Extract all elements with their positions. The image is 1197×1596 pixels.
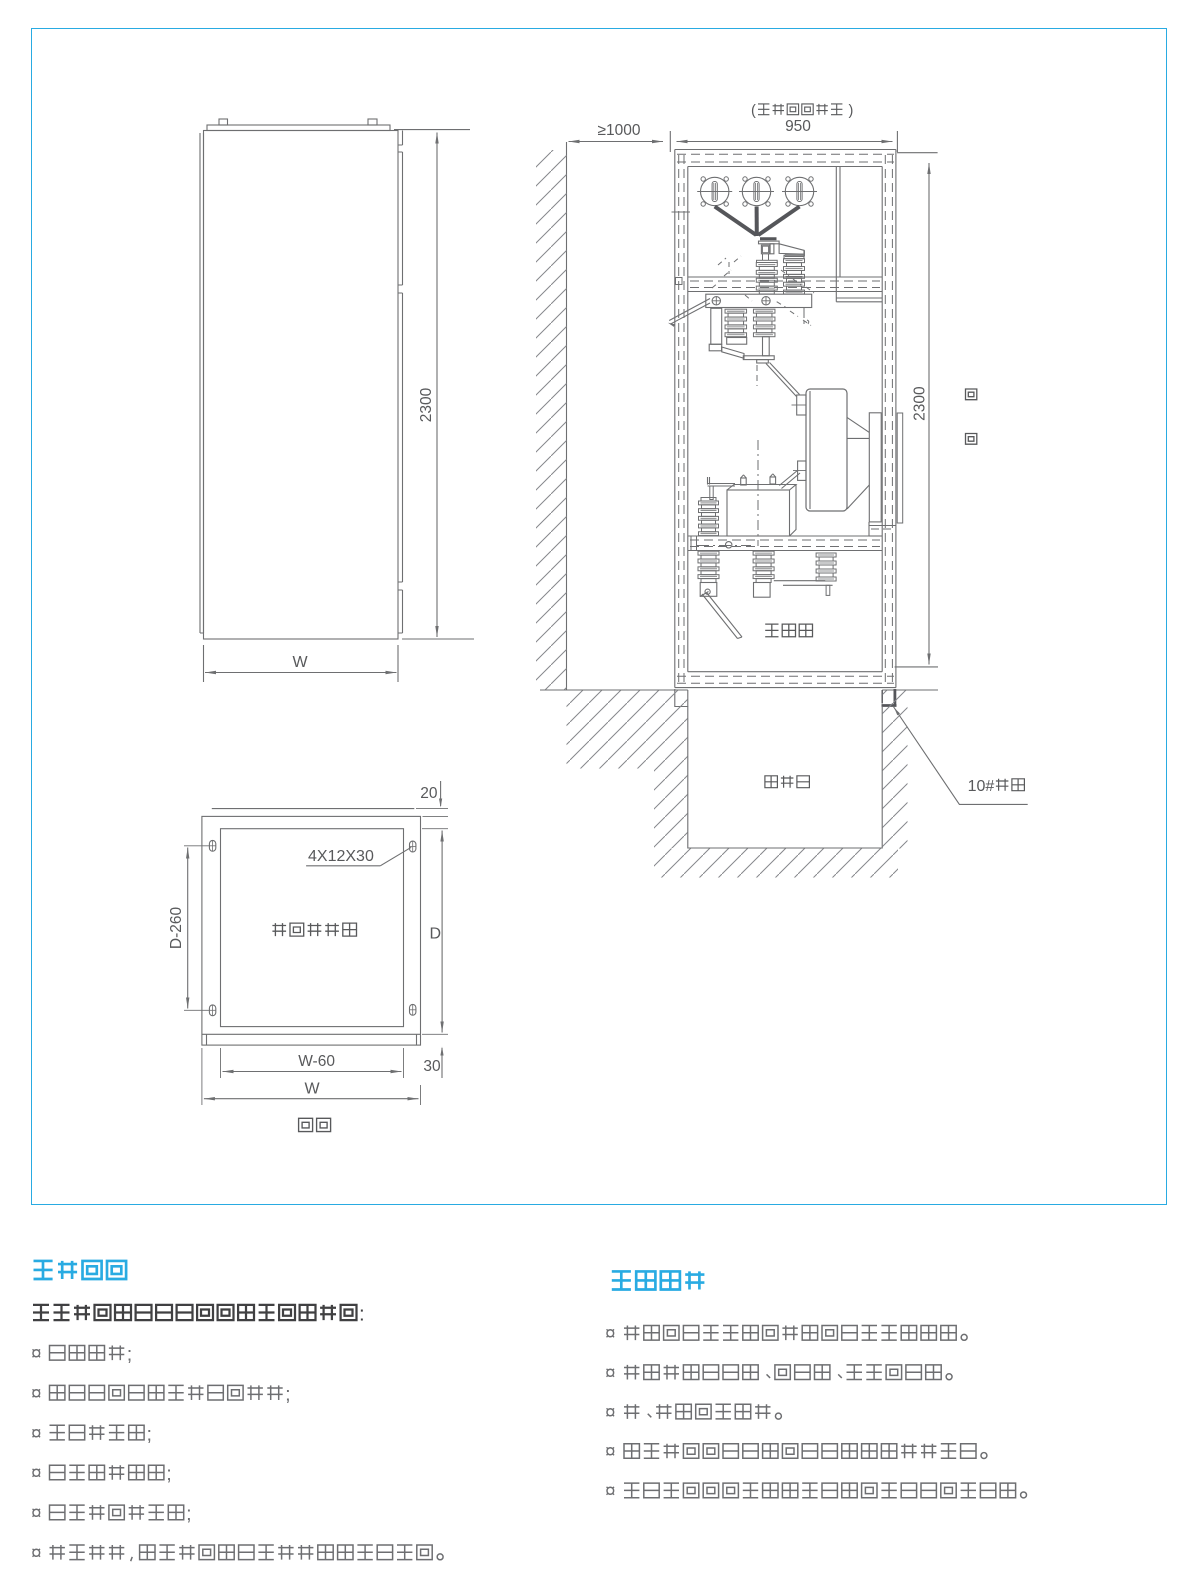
svg-text:;: ; <box>127 1344 133 1366</box>
svg-text:¤: ¤ <box>31 1423 42 1444</box>
svg-text:;: ; <box>285 1383 291 1405</box>
svg-text:;: ; <box>147 1423 153 1445</box>
svg-text:¤: ¤ <box>31 1503 42 1524</box>
svg-text:¤: ¤ <box>31 1543 42 1564</box>
svg-text:¤: ¤ <box>31 1383 42 1404</box>
svg-text:¤: ¤ <box>31 1344 42 1365</box>
svg-text:;: ; <box>186 1503 192 1525</box>
svg-text:¤: ¤ <box>605 1363 616 1384</box>
svg-text:;: ; <box>166 1463 172 1485</box>
svg-text:¤: ¤ <box>605 1324 616 1345</box>
svg-text:¤: ¤ <box>605 1481 616 1502</box>
svg-text:¤: ¤ <box>605 1442 616 1463</box>
svg-text::: : <box>359 1303 365 1326</box>
svg-text:¤: ¤ <box>31 1463 42 1484</box>
svg-text:¤: ¤ <box>605 1402 616 1423</box>
